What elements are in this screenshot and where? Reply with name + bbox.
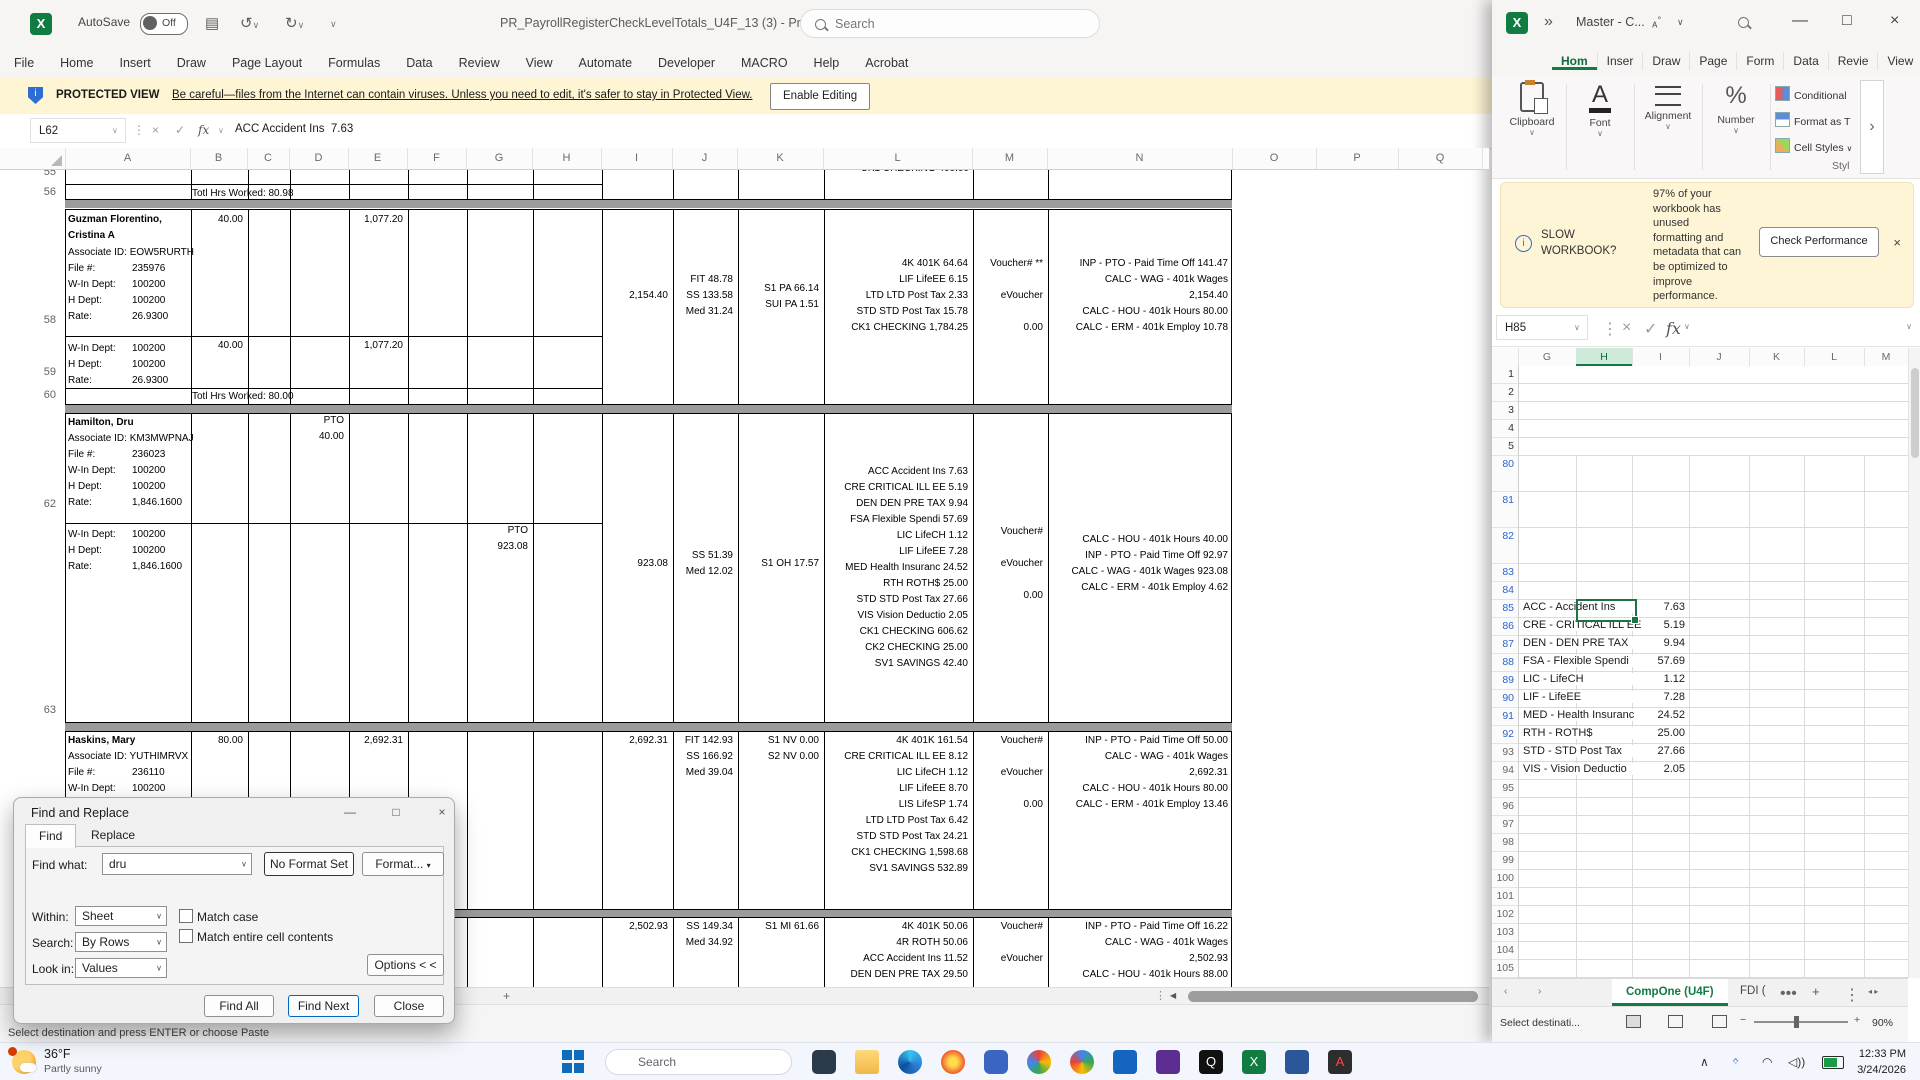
deduction-row[interactable]: 57.69 FSA - Flexible Spendi — [1518, 654, 1906, 672]
tab-draw[interactable]: Draw — [1643, 52, 1690, 70]
deduction-row[interactable]: 1.12 LIC - LifeCH — [1518, 672, 1906, 690]
cell-partial-state-taxes[interactable]: S1 MI 61.66 — [737, 919, 819, 935]
cell-partial-evoucher[interactable]: eVoucher — [972, 951, 1043, 967]
deduction-row[interactable]: 25.00 RTH - ROTH$ — [1518, 726, 1906, 744]
row-header-56[interactable]: 56 — [0, 186, 56, 198]
row-header[interactable]: 90 — [1492, 690, 1518, 708]
within-value: Sheet — [82, 909, 113, 923]
deduction-label[interactable]: STD - STD Post Tax — [1520, 745, 1625, 757]
sheet-tab-fdi[interactable]: FDI ( — [1740, 985, 1766, 997]
deduction-row[interactable]: 24.52 MED - Health Insuranc — [1518, 708, 1906, 726]
cell-partial-gross[interactable]: 2,502.93 — [601, 919, 668, 935]
within-label: Within: — [32, 910, 69, 924]
deduction-label[interactable]: VIS - Vision Deductio — [1520, 763, 1630, 775]
row-header[interactable]: 82 — [1492, 528, 1518, 564]
grid-app-icon[interactable] — [1285, 1050, 1309, 1074]
excel-app-icon[interactable]: X — [1506, 12, 1528, 34]
deduction-label[interactable]: LIC - LifeCH — [1520, 673, 1587, 685]
row-header-62[interactable]: 62 — [0, 498, 56, 510]
row-header[interactable]: 97 — [1492, 816, 1518, 834]
tab-page-layout[interactable]: Page Layout — [232, 56, 302, 70]
enable-editing-button[interactable]: Enable Editing — [770, 83, 870, 110]
col-header-G[interactable]: G — [466, 148, 533, 169]
cell-haskins-deductions[interactable]: 4K 401K 161.54 CRE CRITICAL ILL EE 8.12 … — [823, 733, 968, 877]
row-header[interactable]: 92 — [1492, 726, 1518, 744]
zoom-level[interactable]: 90% — [1872, 1017, 1893, 1029]
cell-haskins-evoucher[interactable]: eVoucher — [972, 765, 1043, 781]
right-grid[interactable]: 7.63 ACC - Accident Ins 5.19 CRE - CRITI… — [1492, 366, 1908, 978]
search-dropdown[interactable]: By Rows ∨ — [75, 932, 167, 952]
row-header[interactable]: 99 — [1492, 852, 1518, 870]
deduction-row[interactable]: 27.66 STD - STD Post Tax — [1518, 744, 1906, 762]
cell-hamilton-state-taxes[interactable]: S1 OH 17.57 — [737, 556, 819, 572]
window-title: Master - C... — [1576, 15, 1645, 29]
chrome-icon[interactable] — [1027, 1050, 1051, 1074]
close-icon[interactable]: × — [1893, 235, 1901, 250]
tab-review[interactable]: Review — [459, 56, 500, 70]
col-header-H[interactable]: H — [1576, 348, 1633, 366]
scrollbar-thumb[interactable] — [1188, 991, 1478, 1002]
cell-partial-deductions[interactable]: 4K 401K 50.06 4R ROTH 50.06 ACC Accident… — [823, 919, 968, 983]
group-separator — [1634, 84, 1635, 170]
chevron-down-icon[interactable]: ∨ — [1677, 17, 1684, 28]
cell-hamilton-rate2[interactable]: 1,846.1600 — [132, 559, 182, 575]
add-sheet-icon[interactable]: + — [1812, 984, 1820, 999]
col-header-J[interactable]: J — [1689, 348, 1750, 366]
tab-draw[interactable]: Draw — [177, 56, 206, 70]
clock[interactable]: 12:33 PM 3/24/2026 — [1857, 1046, 1906, 1078]
cell-guzman-assoc-id[interactable]: Associate ID: EOW5RURTH — [68, 245, 194, 261]
col-header-G[interactable]: G — [1518, 348, 1577, 366]
cell-styles-button[interactable]: Cell Styles ∨ — [1775, 138, 1852, 154]
cell-haskins-voucher-amt[interactable]: 0.00 — [972, 797, 1043, 813]
deduction-label[interactable]: DEN - DEN PRE TAX — [1520, 637, 1631, 649]
group-font[interactable]: A Font ∨ — [1568, 82, 1632, 138]
overflow-icon[interactable]: » — [1544, 13, 1553, 31]
cell-guzman-hdept2[interactable]: 100200 — [132, 357, 165, 373]
col-header-I[interactable]: I — [1632, 348, 1690, 366]
col-header-L[interactable]: L — [1804, 348, 1865, 366]
cell-haskins-memos[interactable]: INP - PTO - Paid Time Off 50.00 CALC - W… — [1047, 733, 1228, 813]
col-header-M[interactable]: M — [1864, 348, 1909, 366]
col-header-Q[interactable]: Q — [1398, 148, 1483, 169]
row-header-59[interactable]: 59 — [0, 366, 56, 378]
col-header-C[interactable]: C — [247, 148, 290, 169]
chevron-down-icon[interactable]: ∨ — [1636, 122, 1700, 131]
sheet-tab-active[interactable]: CompOne (U4F) — [1612, 979, 1728, 1006]
chevron-down-icon[interactable]: ∨ — [1704, 126, 1768, 135]
row-header[interactable]: 89 — [1492, 672, 1518, 690]
group-separator — [1770, 84, 1771, 170]
outlook-icon[interactable] — [1113, 1050, 1137, 1074]
tab-data[interactable]: Data — [406, 56, 432, 70]
within-dropdown[interactable]: Sheet ∨ — [75, 906, 167, 926]
col-header-O[interactable]: O — [1232, 148, 1317, 169]
cell-haskins-gross[interactable]: 2,692.31 — [601, 733, 668, 749]
row-header[interactable]: 105 — [1492, 960, 1518, 978]
close-icon[interactable]: × — [1890, 12, 1899, 30]
status-message: Select destination and press ENTER or ch… — [8, 1027, 269, 1039]
search-box[interactable]: Search — [800, 9, 1100, 38]
cell-guzman-deductions[interactable]: 4K 401K 64.64 LIF LifeEE 6.15 LTD LTD Po… — [823, 256, 968, 336]
row-header[interactable]: 94 — [1492, 762, 1518, 780]
row-header[interactable]: 1 — [1492, 366, 1518, 384]
label-file: File #: — [68, 765, 95, 781]
tab-insert[interactable]: Insert — [120, 56, 151, 70]
redo-icon[interactable]: ↻∨ — [285, 14, 304, 32]
match-case-checkbox[interactable] — [179, 909, 193, 923]
row-header[interactable]: 91 — [1492, 708, 1518, 726]
chevron-down-icon[interactable]: ∨ — [156, 912, 162, 921]
tab-home[interactable]: Home — [60, 56, 93, 70]
deduction-row[interactable]: 7.28 LIF - LifeEE — [1518, 690, 1906, 708]
group-label: Font — [1568, 117, 1632, 129]
cell-guzman-gross[interactable]: 2,154.40 — [601, 288, 668, 304]
col-header-H[interactable]: H — [532, 148, 602, 169]
enter-icon[interactable]: ✓ — [1644, 319, 1657, 339]
lookin-label: Look in: — [32, 962, 74, 976]
row-header[interactable]: 5 — [1492, 438, 1518, 456]
time: 12:33 PM — [1857, 1046, 1906, 1062]
chrome-icon-2[interactable] — [1070, 1050, 1094, 1074]
col-header-M[interactable]: M — [972, 148, 1048, 169]
row-header[interactable]: 85 — [1492, 600, 1518, 618]
search-icon[interactable] — [1738, 17, 1749, 28]
row-header-58[interactable]: 58 — [0, 314, 56, 326]
page-layout-view-icon[interactable] — [1668, 1015, 1683, 1028]
row-header[interactable]: 3 — [1492, 402, 1518, 420]
format-button[interactable]: Format... ▾ — [362, 852, 444, 876]
col-header-E[interactable]: E — [348, 148, 408, 169]
cell-haskins-state-taxes[interactable]: S1 NV 0.00 S2 NV 0.00 — [737, 733, 819, 765]
col-header-I[interactable]: I — [601, 148, 673, 169]
cell-guzman-name[interactable]: Guzman Florentino, Cristina A — [68, 212, 188, 244]
row-header[interactable]: 83 — [1492, 564, 1518, 582]
firefox-icon[interactable] — [941, 1050, 965, 1074]
cell-guzman-evoucher[interactable]: eVoucher — [972, 288, 1043, 304]
cell-row55-tail[interactable]: CK1 CHECKING 400.00 — [826, 169, 969, 177]
conditional-formatting-button[interactable]: Conditional — [1775, 86, 1847, 102]
status-message: Select destinati... — [1500, 1017, 1580, 1029]
zoom-slider-thumb[interactable] — [1794, 1016, 1799, 1028]
shield-icon — [28, 87, 43, 104]
corner[interactable] — [1492, 348, 1519, 366]
cell-haskins-assoc-id[interactable]: Associate ID: YUTHIMRVX — [68, 749, 188, 765]
cell-haskins-voucher[interactable]: Voucher# — [972, 733, 1043, 749]
row-header[interactable]: 101 — [1492, 888, 1518, 906]
tab-replace[interactable]: Replace — [78, 824, 148, 847]
scroll-left-icon[interactable]: ◀ — [1170, 991, 1176, 1000]
cell-hamilton-deductions[interactable]: ACC Accident Ins 7.63 CRE CRITICAL ILL E… — [823, 464, 968, 672]
cell-guzman-memos[interactable]: INP - PTO - Paid Time Off 141.47 CALC - … — [1047, 256, 1228, 336]
row-header[interactable]: 100 — [1492, 870, 1518, 888]
find-what-label: Find what: — [32, 858, 87, 872]
cell-hamilton-hdept[interactable]: 100200 — [132, 479, 165, 495]
cell-hamilton-gross[interactable]: 923.08 — [601, 556, 668, 572]
col-header-A[interactable]: A — [65, 148, 191, 169]
divider-dots-icon: ⋮ — [1602, 319, 1618, 339]
normal-view-icon[interactable] — [1626, 1015, 1641, 1028]
cell-guzman-rate2[interactable]: 26.9300 — [132, 373, 168, 389]
tab-review[interactable]: Revie — [1829, 52, 1879, 70]
selected-cell-H85[interactable] — [1576, 599, 1637, 622]
tab-formulas[interactable]: Form — [1737, 52, 1784, 70]
cancel-icon[interactable]: × — [152, 123, 159, 137]
cell-guzman-hours2[interactable]: 40.00 — [190, 338, 243, 354]
maximize-icon[interactable]: □ — [1842, 12, 1852, 30]
taskbar-search[interactable]: Search — [605, 1049, 792, 1075]
row-header[interactable]: 80 — [1492, 456, 1518, 492]
cell-hamilton-win[interactable]: 100200 — [132, 463, 165, 479]
chevron-down-icon[interactable]: ∨ — [1500, 128, 1564, 137]
acrobat-icon[interactable]: A — [1328, 1050, 1352, 1074]
tab-insert[interactable]: Inser — [1598, 52, 1644, 70]
sheet-menu-icon[interactable]: ⋮ — [1844, 985, 1860, 1005]
col-header-K[interactable]: K — [737, 148, 824, 169]
weather-temp[interactable]: 36°F — [44, 1047, 71, 1061]
battery-icon[interactable] — [1822, 1056, 1844, 1069]
excel-app-icon[interactable]: X — [30, 13, 52, 35]
fx-icon[interactable]: fx — [198, 123, 209, 137]
deduction-label[interactable]: LIF - LifeEE — [1520, 691, 1584, 703]
cell-hamilton-pto[interactable]: PTO 40.00 — [289, 413, 344, 445]
lookin-dropdown[interactable]: Values ∨ — [75, 958, 167, 978]
close-button[interactable]: Close — [374, 995, 444, 1017]
chevron-down-icon[interactable]: ∨ — [156, 964, 162, 973]
deduction-row[interactable]: 9.94 DEN - DEN PRE TAX — [1518, 636, 1906, 654]
match-entire-checkbox[interactable] — [179, 929, 193, 943]
find-what-input[interactable]: dru ∨ — [102, 853, 252, 875]
cell-hamilton-assoc-id[interactable]: Associate ID: KM3MWPNAJ — [68, 431, 194, 447]
group-label: Number — [1704, 114, 1768, 126]
deduction-label[interactable]: FSA - Flexible Spendi — [1520, 655, 1632, 667]
cell-haskins-file[interactable]: 236110 — [132, 765, 165, 781]
sheet-next-icon[interactable]: › — [1538, 986, 1541, 997]
col-header-J[interactable]: J — [672, 148, 738, 169]
page-break-view-icon[interactable] — [1712, 1015, 1727, 1028]
cell-hamilton-name[interactable]: Hamilton, Dru — [68, 415, 134, 431]
label-h-dept: H Dept: — [68, 543, 102, 559]
row-header[interactable]: 88 — [1492, 654, 1518, 672]
tab-formulas[interactable]: Formulas — [328, 56, 380, 70]
label-file: File #: — [68, 261, 95, 277]
quest-app-icon[interactable]: Q — [1199, 1050, 1223, 1074]
more-sheets-icon[interactable]: ••• — [1780, 985, 1797, 1003]
onenote-icon[interactable] — [1156, 1050, 1180, 1074]
col-header-D[interactable]: D — [289, 148, 349, 169]
cell-partial-voucher[interactable]: Voucher# — [972, 919, 1043, 935]
cell-guzman-voucher[interactable]: Voucher# ** — [972, 256, 1043, 272]
cell-guzman-file[interactable]: 235976 — [132, 261, 165, 277]
formula-expand-icon[interactable]: ∨ — [1906, 322, 1912, 331]
no-format-set-button[interactable]: No Format Set — [264, 852, 354, 876]
chevron-down-icon[interactable]: ∨ — [156, 938, 162, 947]
cell-hamilton-memos[interactable]: CALC - HOU - 401k Hours 40.00 INP - PTO … — [1047, 532, 1228, 596]
cell-haskins-name[interactable]: Haskins, Mary — [68, 733, 135, 749]
tab-macro[interactable]: MACRO — [741, 56, 788, 70]
cell-guzman-win[interactable]: 100200 — [132, 277, 165, 293]
add-sheet-icon[interactable]: + — [503, 989, 510, 1003]
enter-icon[interactable]: ✓ — [175, 123, 185, 137]
row-header[interactable]: 104 — [1492, 942, 1518, 960]
ribbon-expand-icon[interactable]: › — [1860, 80, 1884, 174]
options-button[interactable]: Options < < — [367, 954, 444, 976]
chevron-down-icon[interactable]: ∨ — [1574, 323, 1580, 332]
speaker-icon[interactable]: ◁)) — [1788, 1055, 1805, 1069]
cell-haskins-amount[interactable]: 2,692.31 — [348, 733, 403, 749]
cell-hamilton-taxes[interactable]: SS 51.39 Med 12.02 — [672, 548, 733, 580]
minimize-icon[interactable]: — — [337, 802, 363, 822]
info-icon: i — [1515, 235, 1532, 252]
tab-automate[interactable]: Automate — [579, 56, 633, 70]
cell-guzman-win2[interactable]: 100200 — [132, 341, 165, 357]
namebox-dropdown-icon[interactable]: ∨ — [112, 126, 118, 135]
cell-guzman-state-taxes[interactable]: S1 PA 66.14 SUI PA 1.51 — [737, 281, 819, 313]
find-all-button[interactable]: Find All — [204, 995, 274, 1017]
cell-hamilton-rate[interactable]: 1,846.1600 — [132, 495, 182, 511]
tab-file[interactable]: File — [14, 56, 34, 70]
row-header[interactable]: 4 — [1492, 420, 1518, 438]
cell-guzman-taxes[interactable]: FIT 48.78 SS 133.58 Med 31.24 — [672, 272, 733, 320]
tab-scroll-icons[interactable]: ◂ ▸ — [1868, 987, 1878, 996]
cell-hamilton-win2[interactable]: 100200 — [132, 527, 165, 543]
person-icon[interactable]: ᴀ° — [1652, 15, 1661, 31]
autosave-toggle[interactable]: Off — [140, 13, 188, 35]
right-formula-bar: H85 ∨ ⋮ × ✓ fx ∨ ∨ — [1492, 310, 1920, 347]
col-header-N[interactable]: N — [1047, 148, 1233, 169]
cell-hamilton-hdept2[interactable]: 100200 — [132, 543, 165, 559]
font-icon: A — [1589, 82, 1611, 113]
tab-view[interactable]: View — [1878, 52, 1920, 70]
slow-workbook-label: SLOW WORKBOOK? — [1541, 227, 1616, 259]
group-alignment[interactable]: Alignment ∨ — [1636, 82, 1700, 131]
cell-haskins-hours[interactable]: 80.00 — [190, 733, 243, 749]
format-as-table-button[interactable]: Format as T — [1775, 112, 1850, 128]
cell-hamilton-voucher-amt[interactable]: 0.00 — [972, 588, 1043, 604]
teams-icon[interactable] — [984, 1050, 1008, 1074]
tab-view[interactable]: View — [526, 56, 553, 70]
vertical-scrollbar[interactable] — [1908, 348, 1920, 978]
cell-haskins-taxes[interactable]: FIT 142.93 SS 166.92 Med 39.04 — [672, 733, 733, 781]
col-header-K[interactable]: K — [1749, 348, 1805, 366]
group-number[interactable]: % Number ∨ — [1704, 82, 1768, 135]
fx-dropdown-icon[interactable]: ∨ — [218, 126, 224, 135]
row-header[interactable]: 98 — [1492, 834, 1518, 852]
find-next-button[interactable]: Find Next — [288, 995, 359, 1017]
row-header[interactable]: 103 — [1492, 924, 1518, 942]
chevron-down-icon[interactable]: ∨ — [1568, 129, 1632, 138]
col-header-L[interactable]: L — [823, 148, 973, 169]
weather-condition[interactable]: Partly sunny — [44, 1063, 102, 1075]
cancel-icon[interactable]: × — [1622, 319, 1631, 337]
cell-guzman-hours[interactable]: 40.00 — [190, 212, 243, 228]
tab-help[interactable]: Help — [814, 56, 840, 70]
customize-quick-access-icon[interactable]: ∨ — [330, 14, 337, 31]
row-header[interactable]: 93 — [1492, 744, 1518, 762]
cell-guzman-amount[interactable]: 1,077.20 — [348, 212, 403, 228]
row-header-63[interactable]: 63 — [0, 704, 56, 716]
check-performance-button[interactable]: Check Performance — [1759, 227, 1879, 257]
col-header-P[interactable]: P — [1316, 148, 1399, 169]
wifi-icon[interactable]: ◠ — [1762, 1055, 1772, 1069]
deduction-row[interactable]: 2.05 VIS - Vision Deductio — [1518, 762, 1906, 780]
row-header[interactable]: 87 — [1492, 636, 1518, 654]
row-header[interactable]: 2 — [1492, 384, 1518, 402]
chevron-down-icon[interactable]: ∨ — [241, 860, 247, 869]
undo-icon[interactable]: ↺∨ — [240, 14, 259, 32]
cell-total-hours-8000[interactable]: Totl Hrs Worked: 80.00 — [192, 389, 294, 405]
scrollbar-thumb[interactable] — [1911, 368, 1919, 458]
cell-haskins-win[interactable]: 100200 — [132, 781, 165, 797]
cell-hamilton-pto2[interactable]: PTO 923.08 — [466, 523, 528, 555]
cell-guzman-amount2[interactable]: 1,077.20 — [348, 338, 403, 354]
edge-icon[interactable] — [898, 1050, 922, 1074]
row-header[interactable]: 84 — [1492, 582, 1518, 600]
deduction-label[interactable]: RTH - ROTH$ — [1520, 727, 1595, 739]
zoom-out-icon[interactable]: − — [1740, 1014, 1746, 1026]
col-header-F[interactable]: F — [407, 148, 467, 169]
file-explorer-icon[interactable] — [855, 1050, 879, 1074]
tray-expand-icon[interactable]: ∧ — [1700, 1055, 1709, 1069]
row-header[interactable]: 102 — [1492, 906, 1518, 924]
tab-acrobat[interactable]: Acrobat — [865, 56, 908, 70]
cell-guzman-voucher-amt[interactable]: 0.00 — [972, 320, 1043, 336]
formula-text[interactable]: ACC Accident Ins 7.63 — [235, 123, 353, 135]
row-header[interactable]: 86 — [1492, 618, 1518, 636]
row-header[interactable]: 95 — [1492, 780, 1518, 798]
save-icon[interactable]: ▤ — [205, 14, 219, 32]
row-header-60[interactable]: 60 — [0, 389, 56, 401]
row-header[interactable]: 96 — [1492, 798, 1518, 816]
col-header-B[interactable]: B — [190, 148, 248, 169]
group-separator — [1566, 84, 1567, 170]
zoom-in-icon[interactable]: + — [1854, 1014, 1860, 1026]
find-what-value: dru — [109, 857, 126, 871]
zoom-slider[interactable] — [1754, 1021, 1848, 1023]
cell-partial-memos[interactable]: INP - PTO - Paid Time Off 16.22 CALC - W… — [1047, 919, 1228, 985]
cell-guzman-rate[interactable]: 26.9300 — [132, 309, 168, 325]
cell-hamilton-voucher[interactable]: Voucher# — [972, 524, 1043, 540]
cell-guzman-hdept[interactable]: 100200 — [132, 293, 165, 309]
minimize-icon[interactable]: — — [1792, 12, 1808, 30]
group-clipboard[interactable]: Clipboard ∨ — [1500, 82, 1564, 137]
tab-developer[interactable]: Developer — [658, 56, 715, 70]
start-button[interactable] — [562, 1050, 586, 1074]
label-h-dept: H Dept: — [68, 479, 102, 495]
fx-icon[interactable]: fx — [1666, 319, 1681, 338]
close-icon[interactable]: × — [429, 802, 455, 822]
find-replace-dialog: Find and Replace — □ × Find Replace Find… — [13, 797, 455, 1024]
splitter-dots-icon[interactable]: ⋮ — [1155, 989, 1166, 1002]
sheet-prev-icon[interactable]: ‹ — [1504, 986, 1507, 997]
chevron-down-icon[interactable]: ∨ — [1684, 322, 1690, 331]
deduction-label[interactable]: MED - Health Insuranc — [1520, 709, 1637, 721]
cell-hamilton-evoucher[interactable]: eVoucher — [972, 556, 1043, 572]
section-divider — [65, 200, 1232, 208]
select-all-corner[interactable] — [0, 148, 66, 169]
row-header[interactable]: 81 — [1492, 492, 1518, 528]
cell-hamilton-file[interactable]: 236023 — [132, 447, 165, 463]
maximize-icon[interactable]: □ — [383, 802, 409, 822]
cell-partial-taxes[interactable]: SS 149.34 Med 34.92 — [672, 919, 733, 951]
task-view-icon[interactable] — [812, 1050, 836, 1074]
excel-taskbar-icon[interactable]: X — [1242, 1050, 1266, 1074]
tab-find[interactable]: Find — [25, 824, 76, 848]
microphone-icon[interactable]: ᛜ — [1732, 1055, 1739, 1069]
tab-page-layout[interactable]: Page — [1690, 52, 1737, 70]
tab-data[interactable]: Data — [1784, 52, 1828, 70]
tab-home[interactable]: Hom — [1552, 52, 1598, 70]
